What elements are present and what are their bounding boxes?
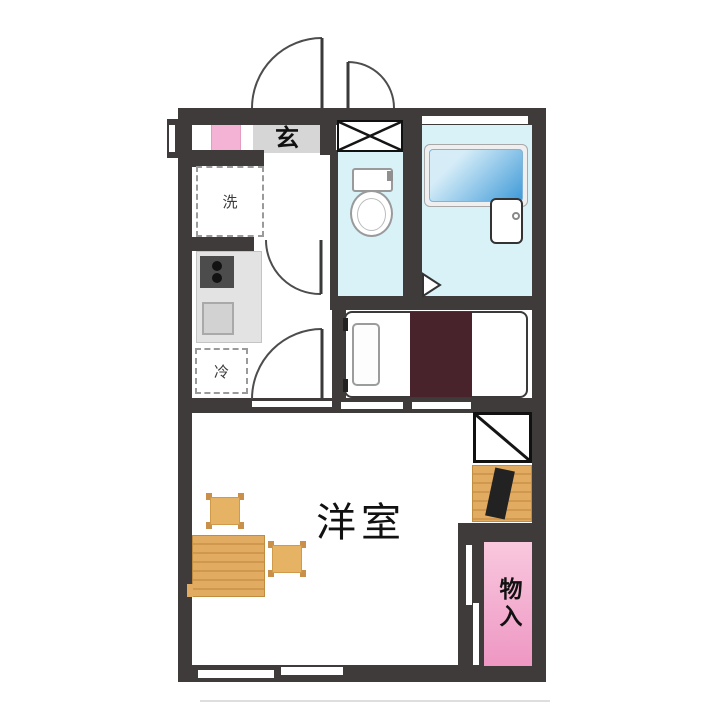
- bathtub: [429, 149, 523, 202]
- chair-seat: [272, 545, 302, 573]
- storage-closet: 物入: [484, 542, 532, 666]
- storage-door-slit-lower: [473, 603, 479, 665]
- refrigerator-label: 冷: [214, 361, 229, 382]
- washing-machine-label: 洗: [222, 191, 237, 212]
- pillow: [352, 323, 380, 386]
- headboard-mark-top: [343, 318, 348, 331]
- storage-label: 物入: [491, 577, 525, 631]
- wall-washroom-bottom: [178, 237, 254, 251]
- mainroom-door-arc: [252, 329, 322, 399]
- toilet-door-arc: [266, 240, 321, 294]
- window-genkan-left: [169, 125, 175, 152]
- toilet-seat: [357, 198, 386, 231]
- bed-band-slit-right: [412, 402, 471, 409]
- floor-plan-page: { "floor_plan": { "rooms": { "entrance":…: [0, 0, 720, 720]
- blanket: [410, 312, 472, 397]
- stove-burner-bottom: [212, 273, 222, 283]
- main-room-label: 洋室: [296, 500, 426, 548]
- chair-seat: [210, 497, 240, 525]
- wall-genkan-right: [320, 108, 336, 155]
- storage-door-slit-upper: [466, 545, 472, 605]
- dining-table: [192, 535, 265, 597]
- open-space-box: [473, 412, 532, 463]
- entrance-door-large-arc: [252, 38, 322, 108]
- bath-faucet-unit: [490, 198, 523, 244]
- window-bottom-right: [281, 667, 343, 675]
- headboard-mark-bottom: [343, 379, 348, 392]
- dining-table-notch: [187, 584, 193, 597]
- wall-genkan-bottom: [188, 150, 264, 167]
- chair-upper: [206, 493, 244, 529]
- chair-lower: [268, 541, 306, 577]
- genkan-label: 玄: [253, 123, 321, 153]
- wall-toilet-right: [403, 108, 422, 310]
- wall-bathroom-bottom: [330, 296, 546, 310]
- pipe-shaft-box: [337, 120, 403, 152]
- mainroom-door-slit: [252, 401, 332, 407]
- stove-burner-top: [212, 261, 222, 271]
- shoe-cabinet: [211, 122, 241, 153]
- bath-faucet-knob: [512, 212, 520, 220]
- window-bottom-left: [198, 670, 274, 678]
- washing-machine-space: 洗: [196, 166, 264, 237]
- refrigerator-space: 冷: [195, 348, 248, 394]
- entrance-door-small-arc: [348, 62, 394, 108]
- bed-band-slit-left: [341, 402, 403, 409]
- wall-toilet-left: [330, 150, 338, 310]
- page-artifact-line: [200, 700, 550, 702]
- kitchen-sink: [202, 302, 234, 335]
- wall-right: [532, 108, 546, 682]
- toilet-flush-button: [387, 171, 393, 181]
- window-bathroom-top: [422, 116, 528, 124]
